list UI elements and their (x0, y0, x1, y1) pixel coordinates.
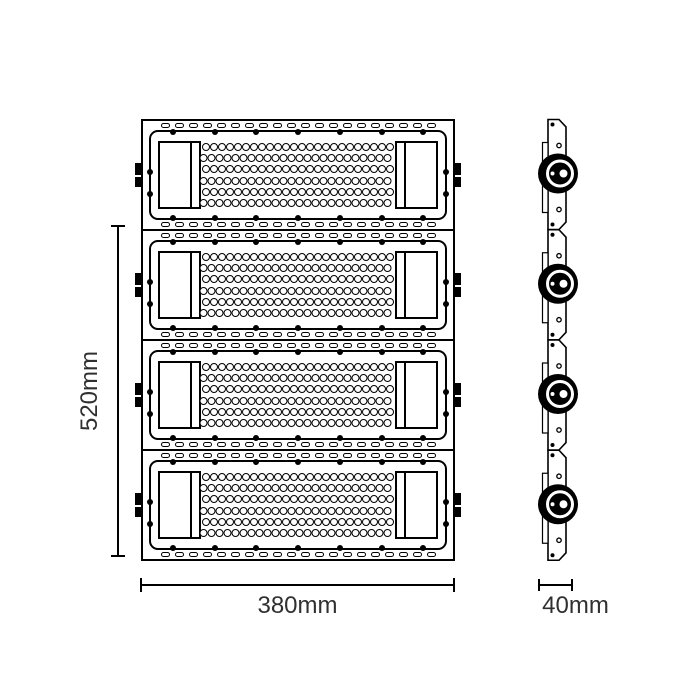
vent-slot (203, 222, 212, 227)
screw-dot (212, 435, 218, 441)
led-dot (272, 154, 280, 162)
vent-slot (231, 222, 240, 227)
led-dot (360, 397, 368, 405)
led-dot (226, 495, 234, 503)
led-dot (384, 264, 392, 272)
led-dot (312, 529, 320, 537)
vent-slot (385, 332, 394, 337)
led-dot (306, 385, 314, 393)
led-dot (202, 143, 210, 151)
led-dot (226, 363, 234, 371)
led-dot (224, 199, 232, 207)
vent-slot (357, 442, 366, 447)
screw-dot (147, 389, 153, 395)
led-dot (290, 473, 298, 481)
led-dot (216, 484, 224, 492)
led-dot (346, 518, 354, 526)
led-dot (250, 275, 258, 283)
vent-slot (259, 442, 268, 447)
led-dot (306, 408, 314, 416)
led-dot (322, 473, 330, 481)
led-dot (290, 253, 298, 261)
led-row (202, 188, 394, 196)
led-dot (344, 199, 352, 207)
vent-slot (399, 222, 408, 227)
led-row (200, 309, 392, 317)
led-dot (218, 188, 226, 196)
led-dot (296, 154, 304, 162)
led-dot (338, 275, 346, 283)
led-dot (202, 298, 210, 306)
led-dot (210, 495, 218, 503)
led-dot (272, 397, 280, 405)
vent-slot (189, 442, 198, 447)
led-dot (384, 177, 392, 185)
led-dot (322, 165, 330, 173)
led-dot (360, 419, 368, 427)
led-dot (266, 275, 274, 283)
led-dot (346, 408, 354, 416)
height-dimension-label: 520mm (78, 341, 102, 441)
mount-tab-left (135, 287, 141, 297)
led-dot (360, 199, 368, 207)
led-dot (362, 473, 370, 481)
screw-dot (212, 129, 218, 135)
led-dot (344, 154, 352, 162)
led-dot (320, 309, 328, 317)
led-dot (346, 473, 354, 481)
led-dot (290, 298, 298, 306)
led-dot (368, 507, 376, 515)
led-dot (274, 363, 282, 371)
led-row (202, 473, 394, 481)
led-dot (384, 374, 392, 382)
led-dot (240, 199, 248, 207)
led-dot (248, 264, 256, 272)
knob-axle (559, 169, 569, 179)
led-dot (272, 309, 280, 317)
led-dot (264, 419, 272, 427)
led-dot (280, 529, 288, 537)
led-dot (288, 484, 296, 492)
led-row (202, 275, 394, 283)
led-dot (328, 484, 336, 492)
vent-slot (371, 222, 380, 227)
led-dot (256, 177, 264, 185)
led-dot (320, 154, 328, 162)
vent-slot (301, 442, 310, 447)
screw-dot (170, 239, 176, 245)
mount-tab-right (455, 163, 461, 175)
led-dot (386, 518, 394, 526)
led-dot (378, 363, 386, 371)
led-dot (248, 529, 256, 537)
led-dot (296, 419, 304, 427)
led-dot (322, 495, 330, 503)
vent-slot (189, 123, 198, 128)
led-dot (376, 507, 384, 515)
led-dot (256, 484, 264, 492)
led-dot (248, 419, 256, 427)
led-dot (288, 199, 296, 207)
led-dot (362, 165, 370, 173)
led-dot (312, 177, 320, 185)
led-dot (250, 363, 258, 371)
led-dot (242, 408, 250, 416)
led-dot (208, 484, 216, 492)
end-cap-left (158, 471, 192, 539)
led-dot (242, 385, 250, 393)
vent-slot (329, 123, 338, 128)
vent-slot (175, 453, 184, 458)
vent-slot (189, 222, 198, 227)
screw-dot (295, 325, 301, 331)
led-dot (280, 507, 288, 515)
led-dot (224, 507, 232, 515)
led-dot (346, 188, 354, 196)
led-dot (258, 253, 266, 261)
led-dot (346, 385, 354, 393)
led-dot (330, 165, 338, 173)
led-dot (370, 385, 378, 393)
led-dot (330, 298, 338, 306)
vent-slot (231, 332, 240, 337)
divider-strip-right (395, 251, 406, 319)
vent-slot (427, 222, 436, 227)
led-dot (304, 199, 312, 207)
vent-slot (413, 233, 422, 238)
led-dot (200, 177, 208, 185)
led-dot (264, 199, 272, 207)
knob-pin (551, 392, 555, 396)
led-dot (378, 298, 386, 306)
screw-dot (379, 325, 385, 331)
led-dot (352, 397, 360, 405)
screw-dot (253, 325, 259, 331)
led-dot (242, 143, 250, 151)
vent-slot (329, 442, 338, 447)
led-dot (314, 143, 322, 151)
technical-drawing-canvas: 520mm 380mm 40mm (0, 0, 700, 700)
led-dot (360, 484, 368, 492)
led-dot (322, 385, 330, 393)
led-row (202, 298, 394, 306)
screw-dot (170, 349, 176, 355)
led-dot (320, 264, 328, 272)
led-dot (218, 363, 226, 371)
led-dot (352, 287, 360, 295)
led-dot (250, 143, 258, 151)
led-dot (256, 309, 264, 317)
vent-slot (287, 123, 296, 128)
led-dot (320, 374, 328, 382)
screw-dot (170, 215, 176, 221)
led-dot (264, 529, 272, 537)
screw-dot (379, 349, 385, 355)
led-dot (250, 473, 258, 481)
knob-axle (559, 499, 569, 509)
screw-dot (551, 553, 555, 557)
led-dot (210, 518, 218, 526)
led-dot (242, 363, 250, 371)
led-dot (322, 188, 330, 196)
led-dot (210, 298, 218, 306)
vent-slot (357, 233, 366, 238)
screw-dot (212, 545, 218, 551)
led-dot (218, 385, 226, 393)
vent-slot (161, 233, 170, 238)
led-dot (328, 287, 336, 295)
depth-dimension-line (538, 584, 573, 586)
vent-slot (329, 453, 338, 458)
led-dot (200, 484, 208, 492)
mount-tab-left (135, 493, 141, 505)
screw-dot (337, 435, 343, 441)
vent-slot (217, 552, 226, 557)
led-dot (376, 154, 384, 162)
vent-slot (175, 233, 184, 238)
led-dot (354, 188, 362, 196)
led-dot (240, 484, 248, 492)
vent-slot (161, 123, 170, 128)
vent-slot (189, 343, 198, 348)
led-dot (314, 363, 322, 371)
vent-slot (315, 332, 324, 337)
led-dot (336, 529, 344, 537)
vent-slot-row-bottom (143, 332, 453, 337)
led-dot (266, 143, 274, 151)
led-dot (272, 529, 280, 537)
led-dot (290, 363, 298, 371)
led-dot (386, 363, 394, 371)
screw-dot (253, 215, 259, 221)
vent-slot (301, 552, 310, 557)
vent-slot (413, 222, 422, 227)
led-dot (336, 419, 344, 427)
led-dot (240, 419, 248, 427)
led-dot (240, 397, 248, 405)
led-dot (330, 408, 338, 416)
vent-slot (273, 453, 282, 458)
vent-slot-row-bottom (143, 222, 453, 227)
vent-slot (399, 332, 408, 337)
led-dot (240, 154, 248, 162)
vent-slot (301, 453, 310, 458)
vent-slot (329, 552, 338, 557)
screw-dot (379, 129, 385, 135)
screw-dot (147, 499, 153, 505)
led-dot (376, 419, 384, 427)
led-dot (232, 484, 240, 492)
led-dot (226, 385, 234, 393)
vent-slot (231, 453, 240, 458)
vent-slot (189, 453, 198, 458)
screw-hole (557, 474, 561, 478)
led-dot (266, 188, 274, 196)
screw-dot (420, 545, 426, 551)
vent-slot (413, 343, 422, 348)
led-dot (208, 374, 216, 382)
vent-slot (231, 343, 240, 348)
vent-slot (175, 552, 184, 557)
vent-slot (343, 552, 352, 557)
vent-slot (273, 343, 282, 348)
vent-slot (245, 552, 254, 557)
led-dot (288, 177, 296, 185)
vent-slot (343, 123, 352, 128)
led-row (200, 419, 392, 427)
led-dot (312, 397, 320, 405)
led-dot (248, 484, 256, 492)
led-dot (224, 419, 232, 427)
vent-slot (329, 222, 338, 227)
vent-slot (329, 332, 338, 337)
led-dot (208, 154, 216, 162)
led-dot (210, 363, 218, 371)
led-dot (378, 253, 386, 261)
led-dot (346, 363, 354, 371)
led-dot (352, 507, 360, 515)
vent-slot (217, 442, 226, 447)
screw-dot (551, 343, 555, 347)
vent-slot (161, 343, 170, 348)
led-dot (328, 397, 336, 405)
knob-pin (551, 282, 555, 286)
led-dot (274, 518, 282, 526)
led-dot (280, 397, 288, 405)
led-dot (320, 177, 328, 185)
led-dot (304, 264, 312, 272)
led-dot (208, 529, 216, 537)
vent-slot (203, 233, 212, 238)
led-dot (298, 495, 306, 503)
led-row (200, 507, 392, 515)
led-dot (354, 385, 362, 393)
led-dot (264, 397, 272, 405)
led-dot (266, 495, 274, 503)
led-dot (234, 363, 242, 371)
led-dot (328, 177, 336, 185)
led-dot (296, 287, 304, 295)
vent-slot (399, 123, 408, 128)
screw-dot (379, 239, 385, 245)
vent-slot (161, 332, 170, 337)
depth-dimension-cap-left (538, 579, 540, 591)
led-dot (322, 298, 330, 306)
mount-tab-left (135, 383, 141, 395)
led-dot (272, 374, 280, 382)
led-dot (264, 484, 272, 492)
led-dot (256, 154, 264, 162)
led-dot (250, 518, 258, 526)
led-dot (272, 287, 280, 295)
led-dot (378, 408, 386, 416)
vent-slot (259, 343, 268, 348)
led-dot (352, 177, 360, 185)
vent-slot (287, 332, 296, 337)
led-dot (344, 484, 352, 492)
led-dot (362, 385, 370, 393)
led-dot (210, 143, 218, 151)
led-dot (256, 374, 264, 382)
led-dot (306, 253, 314, 261)
led-dot (216, 397, 224, 405)
front-view (141, 119, 455, 561)
led-dot (290, 275, 298, 283)
led-dot (344, 397, 352, 405)
led-dot (210, 473, 218, 481)
vent-slot (175, 123, 184, 128)
led-dot (208, 507, 216, 515)
led-dot (240, 529, 248, 537)
led-row (200, 264, 392, 272)
led-dot (360, 374, 368, 382)
led-dot (282, 298, 290, 306)
screw-hole (557, 143, 561, 147)
led-dot (232, 154, 240, 162)
led-dot (290, 385, 298, 393)
mount-tab-right (455, 493, 461, 505)
led-row (200, 287, 392, 295)
led-dot (376, 287, 384, 295)
vent-slot (427, 233, 436, 238)
led-dot (360, 264, 368, 272)
led-dot (258, 518, 266, 526)
led-dot (240, 507, 248, 515)
led-dot (304, 529, 312, 537)
led-dot (386, 275, 394, 283)
led-dot (248, 154, 256, 162)
led-dot (232, 177, 240, 185)
led-dot (226, 473, 234, 481)
led-dot (336, 177, 344, 185)
led-dot (218, 518, 226, 526)
led-dot (352, 419, 360, 427)
side-module (538, 230, 578, 340)
screw-dot (379, 435, 385, 441)
vent-slot (259, 332, 268, 337)
led-dot (298, 275, 306, 283)
led-dot (370, 518, 378, 526)
led-dot (370, 363, 378, 371)
vent-slot (203, 123, 212, 128)
led-dot (338, 495, 346, 503)
led-dot (354, 495, 362, 503)
vent-slot (357, 552, 366, 557)
end-cap-right (404, 141, 438, 209)
led-dot (250, 253, 258, 261)
screw-dot (551, 453, 555, 457)
led-dot (370, 165, 378, 173)
led-dot (328, 507, 336, 515)
led-dot (362, 143, 370, 151)
led-dot (336, 287, 344, 295)
mount-tab-left (135, 163, 141, 175)
led-dot (280, 309, 288, 317)
vent-slot (343, 453, 352, 458)
led-dot (368, 154, 376, 162)
vent-slot (259, 552, 268, 557)
led-dot (338, 363, 346, 371)
screw-dot (443, 411, 449, 417)
led-dot (234, 385, 242, 393)
led-row (200, 484, 392, 492)
led-dot (282, 385, 290, 393)
vent-slot (273, 123, 282, 128)
led-dot (296, 529, 304, 537)
led-dot (282, 518, 290, 526)
led-dot (368, 397, 376, 405)
